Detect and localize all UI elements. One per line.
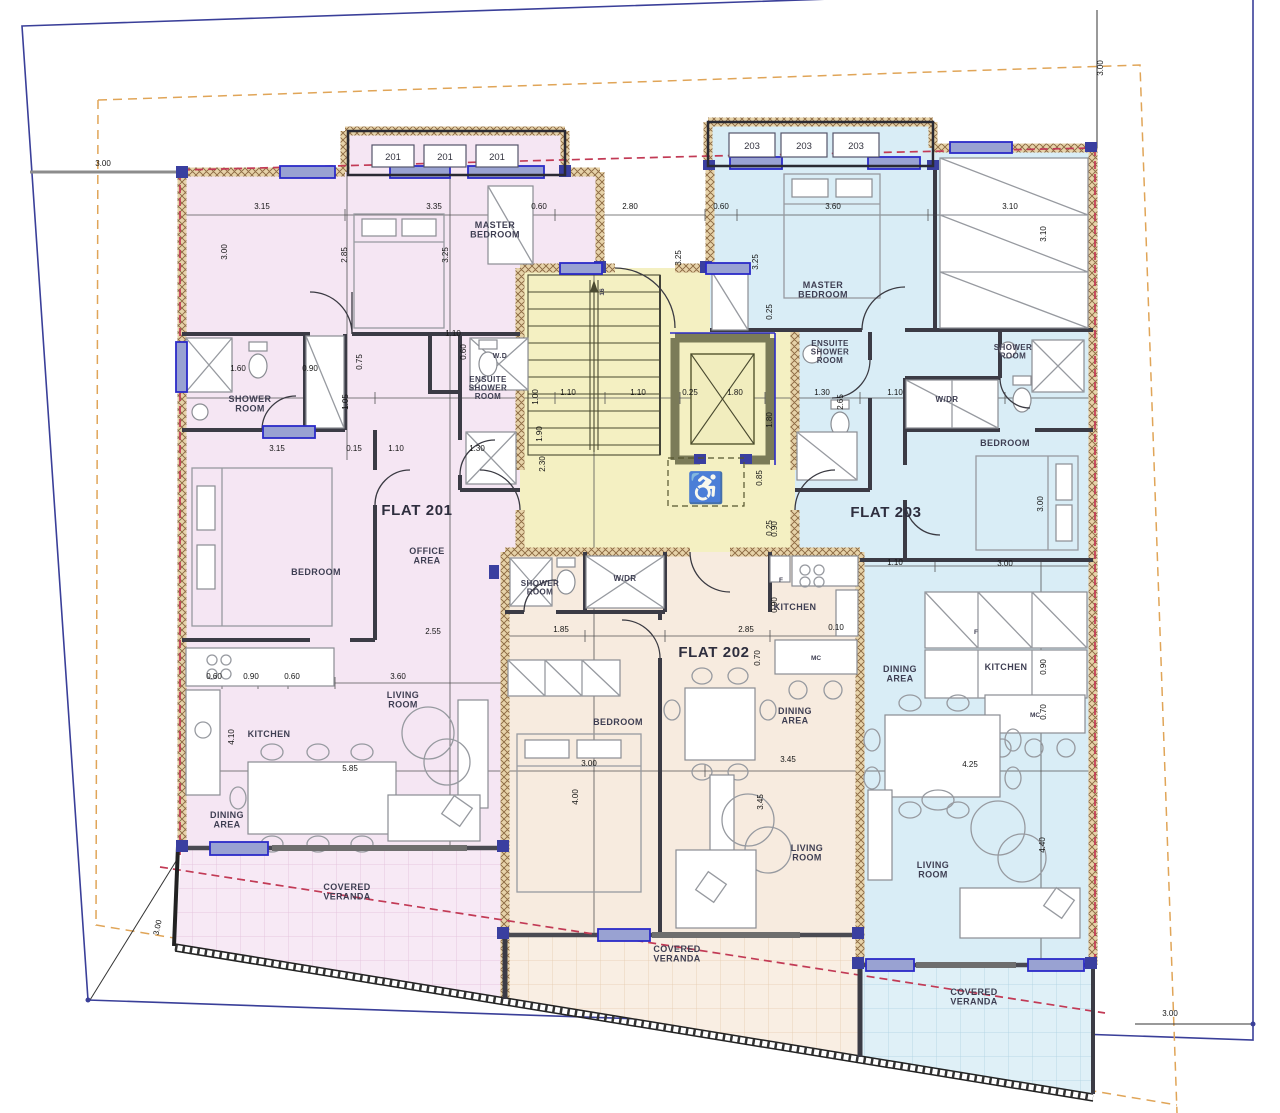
dim-site-left: 3.00 — [95, 159, 111, 168]
dim-label: 0.25 — [682, 388, 698, 397]
dim-label: 3.00 — [220, 244, 229, 260]
label-covered-veranda-201: COVEREDVERANDA — [323, 882, 370, 901]
dim-site-bottom-left: 3.00 — [152, 918, 164, 936]
label-living-room-202: LIVINGROOM — [791, 843, 823, 862]
dim-label: 0.70 — [753, 650, 762, 666]
dim-label: 1.10 — [445, 329, 461, 338]
window — [598, 929, 650, 941]
dim-label: 1.30 — [469, 444, 485, 453]
window — [176, 342, 187, 392]
window — [263, 426, 315, 438]
dim-label: 3.15 — [269, 444, 285, 453]
label-dining-area-202: DININGAREA — [778, 706, 812, 725]
window — [1028, 959, 1084, 971]
dim-label: 0.90 — [243, 672, 259, 681]
dim-label: 3.00 — [1036, 496, 1045, 512]
unit-tag-201-b: 201 — [437, 152, 453, 163]
dim-label: 0.85 — [755, 470, 764, 486]
label-kitchen-203: KITCHEN — [985, 662, 1028, 672]
unit-tag-203-b: 203 — [796, 141, 812, 152]
dim-label: 3.10 — [1002, 202, 1018, 211]
window — [706, 263, 750, 274]
label-covered-veranda-203: COVEREDVERANDA — [950, 987, 997, 1006]
dim-label: 3.45 — [780, 755, 796, 764]
dim-label: 0.90 — [770, 521, 779, 537]
dim-extension-bottom-left — [90, 858, 178, 1000]
dim-label: 0.70 — [1039, 704, 1048, 720]
unit-tag-201-c: 201 — [489, 152, 505, 163]
label-wdr-203: W/DR — [936, 395, 959, 404]
dim-label: 0.90 — [1039, 659, 1048, 675]
dim-label: 1.90 — [535, 426, 544, 442]
dim-label: 3.25 — [674, 250, 683, 266]
window — [560, 263, 602, 274]
label-wd-201: W.D — [493, 353, 507, 360]
dim-label: 5.85 — [342, 764, 358, 773]
label-dining-area-201: DININGAREA — [210, 810, 244, 829]
window — [866, 959, 914, 971]
dim-label: 0.90 — [770, 597, 779, 613]
label-living-room-201: LIVINGROOM — [387, 690, 419, 709]
label-master-bedroom-203: MASTERBEDROOM — [798, 280, 848, 299]
label-kitchen-201: KITCHEN — [248, 729, 291, 739]
dim-label: 0.75 — [355, 354, 364, 370]
label-fridge-203: F — [974, 629, 978, 636]
label-flat-201: FLAT 201 — [381, 502, 452, 519]
dim-label: 3.45 — [756, 794, 765, 810]
dim-label: 1.10 — [630, 388, 646, 397]
dim-label: 1.10 — [388, 444, 404, 453]
dim-label: 3.35 — [426, 202, 442, 211]
dim-site-top-right: 3.00 — [1096, 60, 1105, 76]
label-appliance-202: MC — [811, 655, 821, 662]
label-living-room-203: LIVINGROOM — [917, 860, 949, 879]
dim-label: 1.00 — [531, 389, 540, 405]
dim-label: 2.30 — [538, 456, 547, 472]
dim-label: 1.10 — [887, 558, 903, 567]
dim-label: 1.30 — [814, 388, 830, 397]
dim-label: 3.15 — [254, 202, 270, 211]
plot-corner-dot — [86, 998, 91, 1003]
dim-label: 4.10 — [227, 729, 236, 745]
dim-label: 2.65 — [836, 394, 845, 410]
dim-label: 3.60 — [825, 202, 841, 211]
dim-label: 0.60 — [531, 202, 547, 211]
dim-label: 1.05 — [341, 394, 350, 410]
floor-plan-drawing: ♿ — [0, 0, 1280, 1113]
label-dining-area-203: DININGAREA — [883, 664, 917, 683]
dim-label: 1.10 — [887, 388, 903, 397]
dim-label: 4.25 — [962, 760, 978, 769]
unit-tag-201-a: 201 — [385, 152, 401, 163]
window — [950, 142, 1012, 153]
plot-corner-dot — [1251, 1022, 1256, 1027]
dim-label: 0.60 — [713, 202, 729, 211]
dim-label: 4.40 — [1038, 837, 1047, 853]
dim-label: 0.10 — [828, 623, 844, 632]
dim-label: 3.25 — [441, 247, 450, 263]
dim-label: 3.25 — [751, 254, 760, 270]
dim-label: 1.10 — [560, 388, 576, 397]
dim-label: 0.90 — [302, 364, 318, 373]
wheelchair-icon: ♿ — [687, 470, 724, 505]
dim-label: 0.25 — [765, 304, 774, 320]
label-flat-203: FLAT 203 — [850, 504, 921, 521]
label-bedroom-201: BEDROOM — [291, 567, 341, 577]
dim-label: 0.60 — [206, 672, 222, 681]
dim-site-bottom-right: 3.00 — [1162, 1009, 1178, 1018]
dim-label: 3.00 — [581, 759, 597, 768]
dim-label: 0.60 — [459, 344, 468, 360]
label-kitchen-202: KITCHEN — [774, 602, 817, 612]
dim-label: 3.00 — [997, 559, 1013, 568]
dim-label: 2.85 — [738, 625, 754, 634]
dim-label: 0.15 — [346, 444, 362, 453]
unit-tag-203-a: 203 — [744, 141, 760, 152]
label-office-area-201: OFFICEAREA — [409, 546, 444, 565]
dim-label: 1.60 — [230, 364, 246, 373]
dim-label: 3.10 — [1039, 226, 1048, 242]
label-bedroom-202: BEDROOM — [593, 717, 643, 727]
label-master-bedroom-201: MASTERBEDROOM — [470, 220, 520, 239]
label-fridge-202: F — [779, 577, 783, 584]
unit-tag-203-c: 203 — [848, 141, 864, 152]
dim-label: 2.80 — [622, 202, 638, 211]
dim-label: 1.85 — [553, 625, 569, 634]
dim-label: 2.85 — [340, 247, 349, 263]
label-wdr-202: W/DR — [614, 574, 637, 583]
window — [210, 842, 268, 855]
dim-label: 4.00 — [571, 789, 580, 805]
dim-label: 1.80 — [765, 412, 774, 428]
floor-plan-page: ♿ — [0, 0, 1280, 1113]
dim-label: 1.80 — [727, 388, 743, 397]
dim-label: 2.55 — [425, 627, 441, 636]
label-covered-veranda-202: COVEREDVERANDA — [653, 944, 700, 963]
label-stair-count: 16 — [599, 288, 606, 296]
window — [280, 166, 335, 178]
label-flat-202: FLAT 202 — [678, 644, 749, 661]
dim-label: 0.60 — [284, 672, 300, 681]
dim-label: 3.60 — [390, 672, 406, 681]
label-bedroom-203: BEDROOM — [980, 438, 1030, 448]
